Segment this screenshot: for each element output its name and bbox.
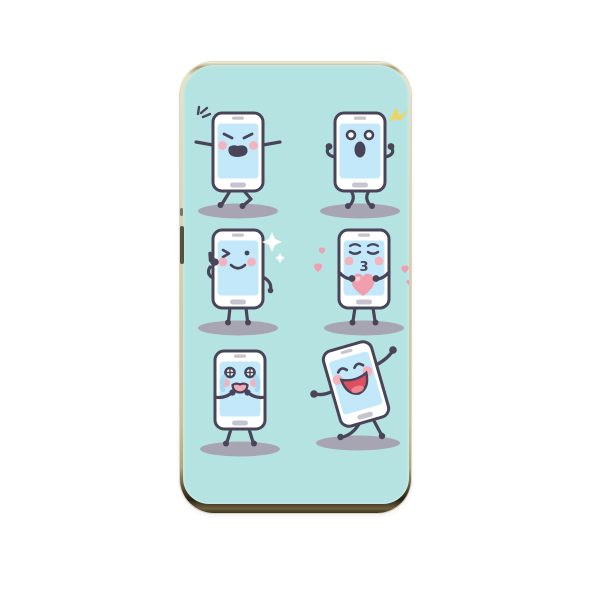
- phone-body: [321, 339, 391, 428]
- shadow: [316, 435, 400, 450]
- home-button: [352, 182, 368, 187]
- home-button: [230, 299, 246, 304]
- speaker: [234, 354, 246, 357]
- shadow: [324, 320, 404, 335]
- home-button: [232, 420, 248, 425]
- home-button: [230, 182, 246, 187]
- kissing-phone-sticker: 3: [309, 222, 409, 340]
- shadow: [320, 203, 400, 218]
- tear-left: [221, 377, 223, 390]
- side-notch: [180, 208, 183, 216]
- case-surface: 3: [183, 65, 409, 505]
- phone-case: 3: [180, 62, 411, 513]
- shadow: [200, 441, 280, 456]
- speaker: [232, 233, 244, 236]
- tear-right: [256, 377, 258, 390]
- volume-button: [180, 226, 184, 264]
- yellow-sparkle-icon: [389, 107, 408, 122]
- shadow: [198, 203, 278, 218]
- winking-phone-sticker: [183, 222, 293, 340]
- home-button: [356, 299, 372, 304]
- product-photo: { "product": { "name": "phone-case", "su…: [0, 0, 600, 600]
- speaker: [354, 116, 366, 119]
- dancing-phone-sticker: [301, 337, 409, 455]
- surprised-phone-sticker: [305, 105, 409, 223]
- anger-mark-icon: [198, 107, 210, 117]
- speaker: [232, 116, 244, 119]
- crying-phone-sticker: [185, 343, 295, 461]
- white-sparkle-icons: [262, 232, 285, 263]
- shadow: [198, 320, 278, 335]
- kiss-mouth: 3: [359, 260, 368, 275]
- angry-phone-sticker: [183, 105, 293, 223]
- speaker: [358, 233, 370, 236]
